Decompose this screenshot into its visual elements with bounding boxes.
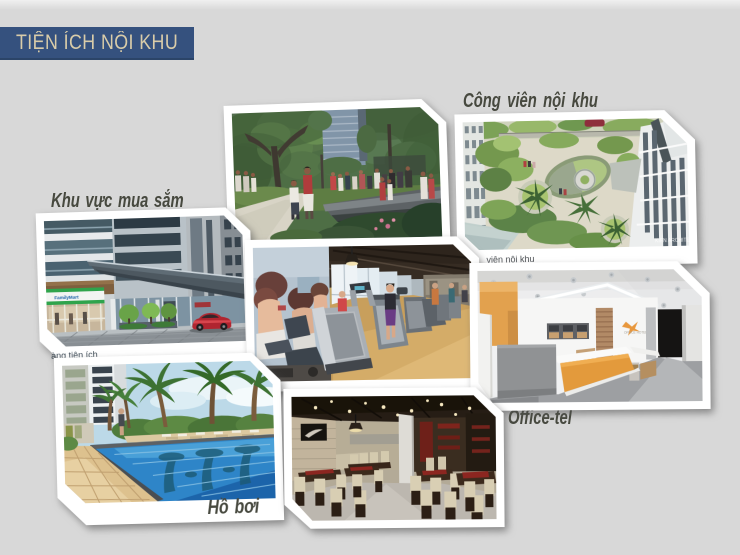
- svg-text:KIEN ARCHITECT: KIEN ARCHITECT: [655, 237, 689, 244]
- svg-text:OFFICE HOTEL: OFFICE HOTEL: [624, 330, 647, 334]
- svg-text:FamilyMart: FamilyMart: [54, 295, 79, 301]
